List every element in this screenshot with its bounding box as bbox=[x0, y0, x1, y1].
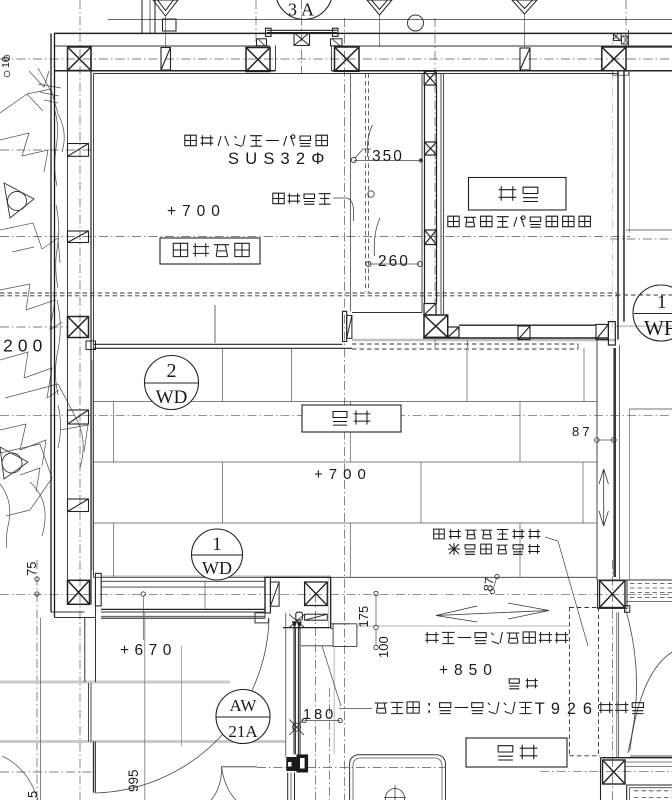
svg-text:0: 0 bbox=[33, 336, 43, 356]
svg-text:+700: +700 bbox=[167, 203, 226, 220]
svg-text:2: 2 bbox=[567, 700, 576, 718]
svg-text:1: 1 bbox=[657, 292, 667, 313]
svg-text:WF: WF bbox=[644, 316, 672, 340]
svg-text:175: 175 bbox=[356, 606, 371, 628]
svg-text:350: 350 bbox=[372, 148, 404, 165]
svg-text:WD: WD bbox=[202, 558, 232, 578]
svg-text:10: 10 bbox=[0, 56, 12, 68]
svg-text:0: 0 bbox=[18, 336, 28, 356]
svg-text:A: A bbox=[301, 0, 314, 20]
svg-text:T: T bbox=[535, 700, 545, 718]
svg-text:180: 180 bbox=[303, 707, 336, 723]
svg-text:2: 2 bbox=[3, 336, 13, 356]
svg-text:+850: +850 bbox=[439, 662, 498, 679]
svg-text:AW: AW bbox=[230, 696, 258, 715]
svg-text:995: 995 bbox=[126, 769, 141, 792]
svg-text:+700: +700 bbox=[314, 466, 372, 483]
svg-text:87: 87 bbox=[572, 424, 593, 439]
svg-text:3: 3 bbox=[288, 0, 297, 20]
svg-text:21A: 21A bbox=[228, 722, 258, 741]
svg-text:6: 6 bbox=[583, 700, 592, 718]
svg-text:WD: WD bbox=[156, 387, 188, 408]
svg-text:2: 2 bbox=[167, 360, 177, 382]
svg-text:+670: +670 bbox=[120, 642, 177, 659]
svg-text:9: 9 bbox=[551, 700, 560, 718]
svg-text:1: 1 bbox=[212, 534, 222, 555]
svg-text:260: 260 bbox=[378, 253, 410, 270]
svg-text:75: 75 bbox=[24, 562, 39, 576]
svg-text:SUS32Φ: SUS32Φ bbox=[228, 150, 331, 168]
svg-text:5: 5 bbox=[25, 791, 40, 798]
